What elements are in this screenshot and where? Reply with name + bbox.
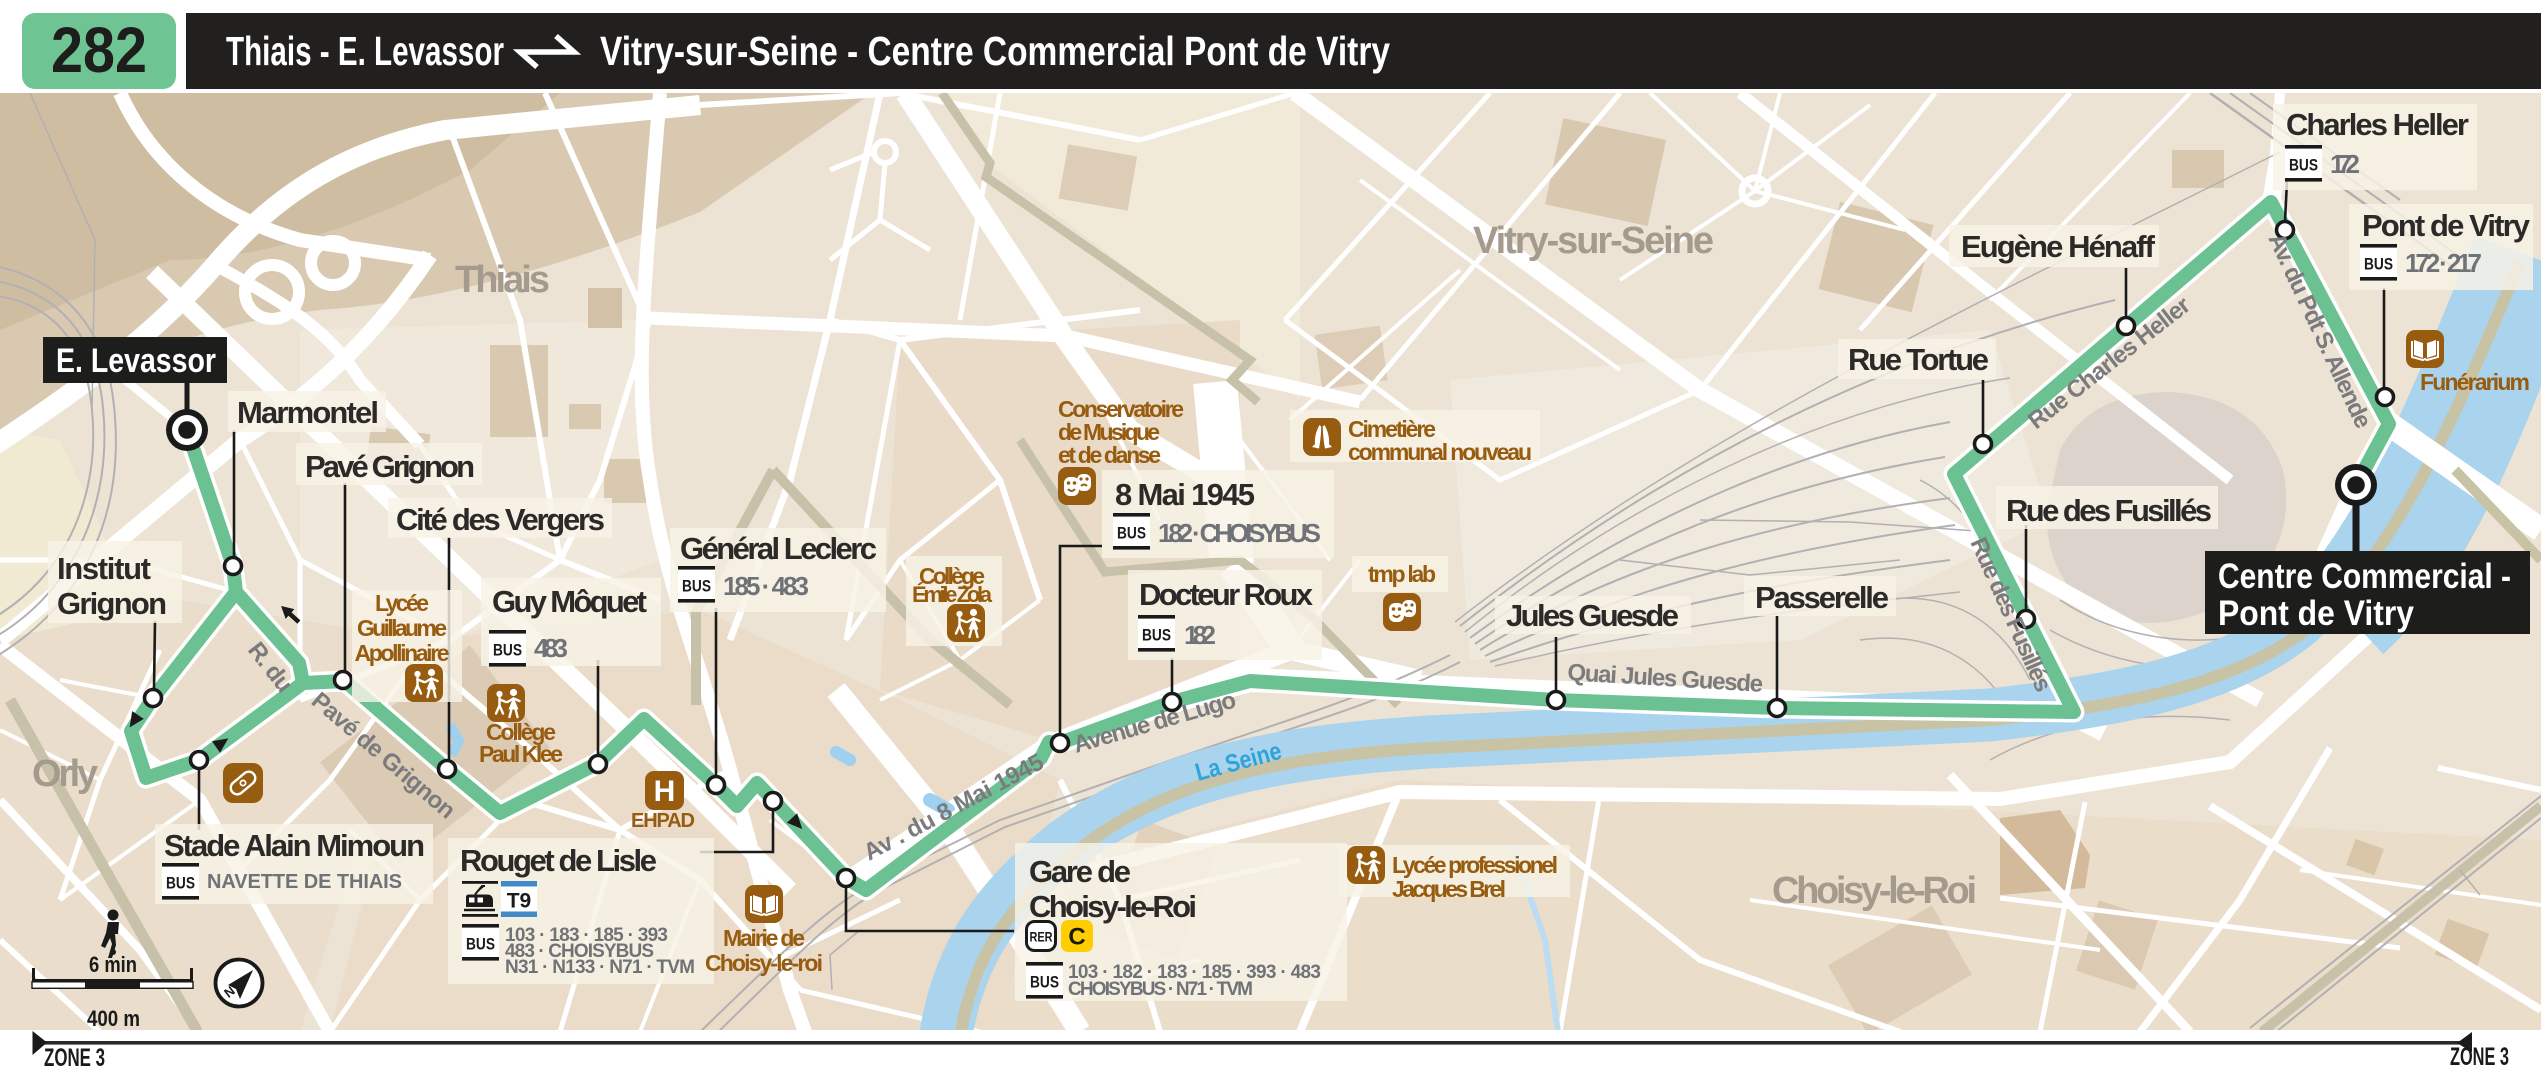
svg-text:185 · 483: 185 · 483 xyxy=(723,571,809,601)
svg-text:6 min: 6 min xyxy=(89,952,137,977)
svg-text:ZONE 3: ZONE 3 xyxy=(44,1044,105,1072)
svg-text:CHOISYBUS · N71 · TVM: CHOISYBUS · N71 · TVM xyxy=(1068,979,1253,1000)
svg-text:Eugène Hénaff: Eugène Hénaff xyxy=(1961,229,2156,264)
svg-text:Pont de Vitry: Pont de Vitry xyxy=(2362,208,2531,243)
svg-text:Apollinaire: Apollinaire xyxy=(355,640,450,666)
svg-text:Funérarium: Funérarium xyxy=(2420,369,2530,395)
svg-text:RER: RER xyxy=(1030,929,1053,945)
svg-text:Institut: Institut xyxy=(57,551,151,586)
svg-text:C: C xyxy=(1068,924,1085,951)
svg-text:NAVETTE DE THIAIS: NAVETTE DE THIAIS xyxy=(207,871,402,893)
svg-text:Thiais - E. Levassor: Thiais - E. Levassor xyxy=(226,28,504,74)
svg-text:Choisy-le-Roi: Choisy-le-Roi xyxy=(1772,870,1977,912)
svg-text:Général Leclerc: Général Leclerc xyxy=(680,531,877,566)
svg-text:EHPAD: EHPAD xyxy=(631,810,695,832)
svg-text:Vitry-sur-Seine: Vitry-sur-Seine xyxy=(1473,220,1714,262)
svg-text:Paul Klee: Paul Klee xyxy=(479,741,563,767)
svg-text:Passerelle: Passerelle xyxy=(1755,580,1889,615)
svg-text:Choisy-le-roi: Choisy-le-roi xyxy=(705,950,823,976)
svg-text:282: 282 xyxy=(51,14,147,86)
svg-text:Thiais: Thiais xyxy=(455,259,550,301)
svg-text:Centre Commercial -: Centre Commercial - xyxy=(2218,557,2511,596)
svg-text:Jules Guesde: Jules Guesde xyxy=(1506,598,1679,633)
svg-text:Lycée: Lycée xyxy=(375,590,429,616)
svg-text:Charles Heller: Charles Heller xyxy=(2286,107,2469,142)
svg-text:T9: T9 xyxy=(507,890,532,913)
svg-text:Guy Môquet: Guy Môquet xyxy=(492,584,647,619)
svg-text:Guillaume: Guillaume xyxy=(357,615,447,641)
svg-text:182 · CHOISYBUS: 182 · CHOISYBUS xyxy=(1158,518,1321,548)
svg-text:Orly: Orly xyxy=(32,753,98,795)
svg-text:H: H xyxy=(654,775,676,808)
svg-text:Docteur Roux: Docteur Roux xyxy=(1139,577,1314,612)
svg-text:Marmontel: Marmontel xyxy=(237,395,379,430)
svg-text:communal nouveau: communal nouveau xyxy=(1348,439,1532,465)
svg-text:Pont de Vitry: Pont de Vitry xyxy=(2218,594,2414,633)
svg-text:E. Levassor: E. Levassor xyxy=(56,342,216,380)
svg-text:Vitry-sur-Seine - Centre Comme: Vitry-sur-Seine - Centre Commercial Pont… xyxy=(600,28,1390,74)
svg-text:Cité des Vergers: Cité des Vergers xyxy=(396,502,605,537)
svg-text:Stade Alain Mimoun: Stade Alain Mimoun xyxy=(164,828,425,863)
svg-text:Choisy-le-Roi: Choisy-le-Roi xyxy=(1029,889,1197,924)
svg-text:tmp lab: tmp lab xyxy=(1368,561,1436,587)
svg-text:Mairie de: Mairie de xyxy=(723,925,805,951)
svg-text:Jacques Brel: Jacques Brel xyxy=(1392,876,1506,902)
svg-text:Rue Tortue: Rue Tortue xyxy=(1848,342,1989,377)
svg-text:Lycée professionel: Lycée professionel xyxy=(1392,852,1558,878)
svg-text:Rue des Fusillés: Rue des Fusillés xyxy=(2006,493,2212,528)
svg-text:483: 483 xyxy=(534,633,568,663)
svg-text:172: 172 xyxy=(2330,149,2360,179)
svg-text:8 Mai 1945: 8 Mai 1945 xyxy=(1115,477,1255,512)
svg-text:Grignon: Grignon xyxy=(57,586,167,621)
svg-text:et de danse: et de danse xyxy=(1058,442,1161,468)
svg-text:ZONE 3: ZONE 3 xyxy=(2450,1043,2509,1071)
svg-text:Rouget de Lisle: Rouget de Lisle xyxy=(460,843,657,878)
svg-text:N31 · N133 · N71 · TVM: N31 · N133 · N71 · TVM xyxy=(505,957,695,978)
svg-text:Gare de: Gare de xyxy=(1029,854,1131,889)
svg-text:Émile Zola: Émile Zola xyxy=(912,582,993,607)
svg-text:172 · 217: 172 · 217 xyxy=(2405,248,2482,278)
svg-text:Pavé Grignon: Pavé Grignon xyxy=(305,449,475,484)
svg-text:400 m: 400 m xyxy=(87,1006,140,1031)
svg-text:182: 182 xyxy=(1184,620,1216,650)
